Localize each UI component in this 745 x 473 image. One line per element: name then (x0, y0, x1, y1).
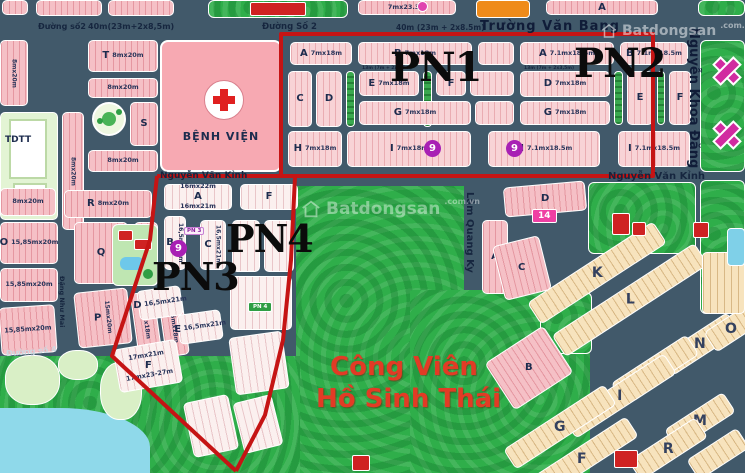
map-canvas[interactable]: TDTT BỆNH VIỆN (0, 0, 745, 473)
lot-9-badge: 9 (424, 140, 441, 157)
block-letter: C (204, 240, 211, 250)
plot-block (475, 101, 514, 125)
block-letter: G (394, 108, 402, 118)
block-dimension: 8mx20m (107, 157, 138, 165)
plot-block: 8mx20m (0, 40, 28, 106)
block-letter: F (677, 93, 684, 103)
street-dim-left: 40m(23m+2x8,5m) (88, 22, 174, 31)
park-name-line2: Hồ Sinh Thái (316, 384, 501, 414)
block-dimension: 7mx18m (305, 145, 336, 153)
building-icon (352, 455, 370, 471)
plot-block: O15,85mx20m (0, 222, 58, 264)
pond-shape (5, 355, 60, 405)
tdtt-building (9, 119, 47, 179)
roundabout (92, 102, 126, 136)
block-letter: S (140, 119, 147, 129)
plot-block: F (240, 184, 298, 210)
block-dimension: 8mx20m (98, 200, 129, 208)
street-label-nguyen-van-kinh-right: Nguyễn Văn Kỉnh (608, 171, 705, 182)
block-letter: Q (97, 248, 106, 258)
plot-block (228, 331, 290, 396)
pool (120, 257, 144, 270)
block-letter: I (617, 389, 622, 403)
block-letter: G (554, 420, 566, 434)
lot-9-badge: 9 (506, 140, 523, 157)
block-letter: H (294, 144, 302, 154)
block-dimension: 7mx18m (405, 109, 436, 117)
plot-block: 8mx20m (88, 78, 158, 98)
building-icon (614, 450, 638, 468)
block-letter: I (390, 144, 394, 154)
plot-block: 16mx22mA16mx21m (164, 184, 232, 210)
block-letter: T (102, 51, 109, 61)
region-label-pn2: PN2 (574, 44, 665, 84)
house-icon (300, 198, 322, 220)
block-dimension: 16mx22m (180, 183, 216, 191)
orange-block (476, 0, 530, 18)
block-letter: C (296, 94, 303, 104)
dot-badge (417, 1, 428, 12)
block-dimension: 15mx20m (103, 301, 113, 335)
building-icon (693, 222, 709, 238)
house-icon (600, 22, 618, 40)
plot-block: S (130, 102, 158, 146)
street-label-nguyen-khoa-dang: Nguyễn Khoa Đăng (686, 28, 701, 178)
plot-block (478, 42, 514, 65)
block-dimension: 7mx18m (555, 109, 586, 117)
hospital-block: BỆNH VIỆN (160, 40, 282, 172)
block-letter: E (637, 93, 644, 103)
region-label-pn1: PN1 (390, 48, 481, 88)
region-label-pn3: PN3 (152, 258, 239, 296)
block-letter: D (544, 79, 552, 89)
block-letter: P (94, 314, 101, 324)
plot-block: G7mx18m (359, 101, 471, 125)
block-letter: I (628, 144, 632, 154)
block-dimension: 16,5mx21m (183, 319, 226, 333)
block-letter: A (539, 49, 547, 59)
block-dimension: 15,85mx20m (5, 281, 52, 289)
building-icon (250, 2, 306, 16)
hospital-cross-icon (204, 80, 244, 120)
block-letter: R (663, 442, 674, 456)
plot-block (2, 0, 28, 15)
block-letter: A (194, 192, 202, 202)
plot-block: G7mx18m (520, 101, 610, 125)
plot-block (346, 71, 355, 127)
watermark: Batdongsan .com.vn (600, 22, 745, 42)
street-label-dang-nhu-mai: Đặng Như Mai (58, 276, 66, 340)
block-dimension: 15,85mx20m (11, 239, 58, 247)
street-label-duong-so-2-left: Đường số2 (38, 22, 86, 31)
plot-block: R8mx20m (64, 190, 152, 218)
tdtt-label: TDTT (5, 135, 31, 145)
block-dimension: 8mx20m (107, 84, 138, 92)
building-icon (612, 213, 630, 235)
street-sub-dim: 13m (7m + 2x3,5m) (524, 66, 574, 71)
block-letter: K (592, 266, 603, 280)
block-letter: E (174, 325, 181, 335)
park-name-line1: Công Viên (330, 352, 478, 382)
block-letter: D (325, 94, 333, 104)
block-letter: R (87, 199, 95, 209)
plot-block: 15,85mx20m (0, 268, 58, 302)
x-landmark-icon (712, 56, 742, 86)
block-letter: G (544, 108, 552, 118)
block-dimension: 16mx21m (180, 203, 216, 211)
plot-block (108, 0, 174, 16)
plot-block (36, 0, 102, 16)
plot-block: C (288, 71, 312, 127)
region-label-pn4: PN4 (226, 220, 313, 258)
canal (727, 228, 745, 266)
plot-block: H7.1mx18.5m (488, 131, 600, 167)
lot-14-badge: 14 (532, 209, 557, 223)
pn4-sign: PN 4 (248, 302, 272, 312)
watermark: Batdongsan .com.vn (300, 198, 480, 222)
block-dimension: 8mx20m (112, 52, 143, 60)
block-letter: A (300, 49, 308, 59)
plot-block: P15mx20m (73, 287, 133, 348)
block-letter: D (541, 194, 549, 204)
plot-block: 8mx20m (88, 150, 158, 172)
block-dimension: 7.1mx18.5m (527, 145, 572, 153)
plot-block: 8mx20m (0, 188, 56, 216)
street-label-truong-van-bang: Trường Văn Bang (480, 19, 620, 34)
lot-9-badge: 9 (170, 240, 187, 257)
block-letter: E (368, 79, 375, 89)
plot-block: A (546, 0, 658, 15)
plot-block: 7mx23.3m (358, 0, 456, 15)
block-letter: A (598, 3, 606, 13)
plot-block: A7mx18m (290, 42, 352, 65)
block-dimension: 15,85mx20m (4, 324, 52, 335)
pond-shape (58, 350, 98, 380)
block-dimension: 7.1mx18.5m (635, 145, 680, 153)
block-letter: B (525, 363, 533, 373)
block-dimension: 8mx20m (12, 198, 43, 206)
plot-block: I7mx18m (347, 131, 471, 167)
street-dim-right: 40m (23m + 2x8.5m) (396, 23, 485, 32)
block-letter: O (725, 322, 737, 336)
block-letter: F (577, 452, 587, 466)
plot-block: D (316, 71, 342, 127)
block-dimension: 8mx20m (11, 59, 18, 88)
block-letter: L (626, 293, 635, 307)
block-dimension: 8mx20m (70, 157, 77, 186)
building-icon (632, 222, 646, 236)
block-letter: F (266, 192, 273, 202)
plot-block: T8mx20m (88, 40, 158, 72)
block-letter: C (518, 263, 525, 273)
block-letter: D (133, 301, 141, 311)
x-landmark-icon (712, 120, 742, 150)
plot-block: E16,5mx21m (176, 309, 224, 345)
block-dimension: 7mx18m (311, 50, 342, 58)
green-block-top-right (698, 0, 745, 16)
block-letter: F (145, 361, 152, 371)
street-label-duong-so-2-mid: Đường Số 2 (262, 22, 317, 32)
pn3-sign: PN 3 (184, 227, 204, 235)
street-label-nguyen-van-kinh-left: Nguyễn Văn Kỉnh (160, 171, 247, 181)
plot-block: I7.1mx18.5m (618, 131, 690, 167)
hospital-label: BỆNH VIỆN (162, 130, 280, 143)
plot-block: H7mx18m (288, 131, 342, 167)
block-letter: O (0, 238, 8, 248)
